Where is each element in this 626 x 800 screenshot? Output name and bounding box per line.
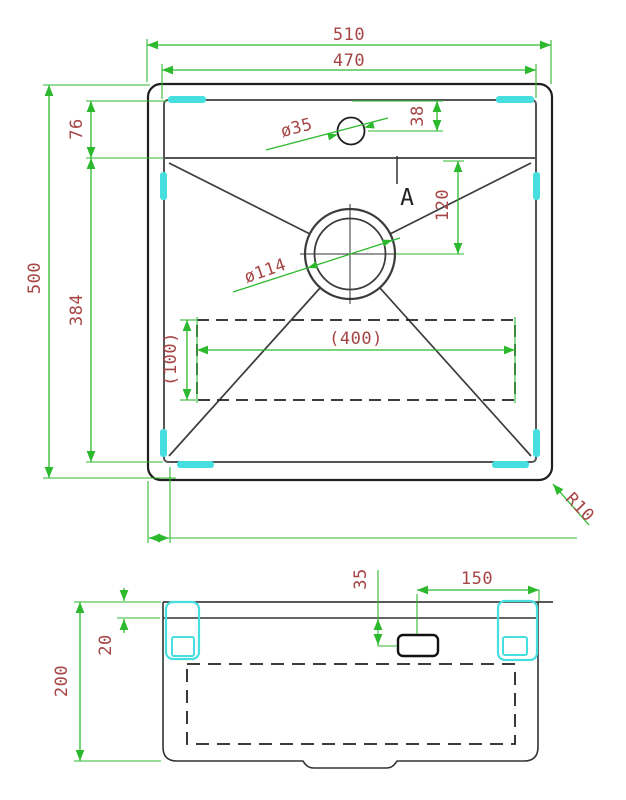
top-view: A: [148, 84, 552, 480]
drawing-canvas: A 510 470 500 76 384 38 120: [0, 0, 626, 800]
clip-top-right: [496, 96, 534, 103]
clip-top-left: [168, 96, 206, 103]
clip-bottom-left: [177, 461, 214, 468]
dim-400-label: (400): [329, 329, 383, 349]
clip-bottom-right: [492, 461, 529, 468]
dim-384-label: 384: [67, 294, 87, 326]
dim-35-label: 35: [351, 568, 371, 589]
dim-drain-dia-label: ø114: [242, 255, 289, 288]
dim-20-label: 20: [96, 634, 116, 655]
clip-left-upper: [160, 172, 167, 200]
slope-line-bottom-right: [380, 288, 531, 456]
slope-line-bottom-left: [169, 288, 320, 456]
clip-left-lower: [160, 429, 167, 457]
dim-76-label: 76: [67, 118, 87, 139]
dim-150-label: 150: [461, 569, 493, 589]
dim-100-label: (100): [161, 332, 181, 386]
overflow-fitting: [398, 635, 438, 656]
section-marker-label: A: [400, 185, 414, 211]
dim-500-label: 500: [25, 262, 45, 294]
base-pad-hidden-section: [187, 664, 515, 744]
sink-technical-drawing: A 510 470 500 76 384 38 120: [0, 0, 626, 800]
dim-faucet-dia-label: ø35: [279, 114, 315, 142]
side-clip-right-inner: [503, 637, 527, 655]
dim-510-label: 510: [333, 25, 365, 45]
dim-120-label: 120: [433, 189, 453, 221]
clip-right-lower: [533, 429, 540, 457]
side-view: [163, 601, 553, 768]
dim-470-label: 470: [333, 51, 365, 71]
faucet-hole: [338, 118, 365, 145]
dim-corner-radius-label: R10: [561, 489, 598, 526]
dim-200-label: 200: [52, 665, 72, 697]
clip-right-upper: [533, 172, 540, 200]
side-clip-left-inner: [172, 637, 194, 656]
slope-line-top-left: [169, 163, 310, 234]
dim-38-label: 38: [408, 105, 428, 126]
